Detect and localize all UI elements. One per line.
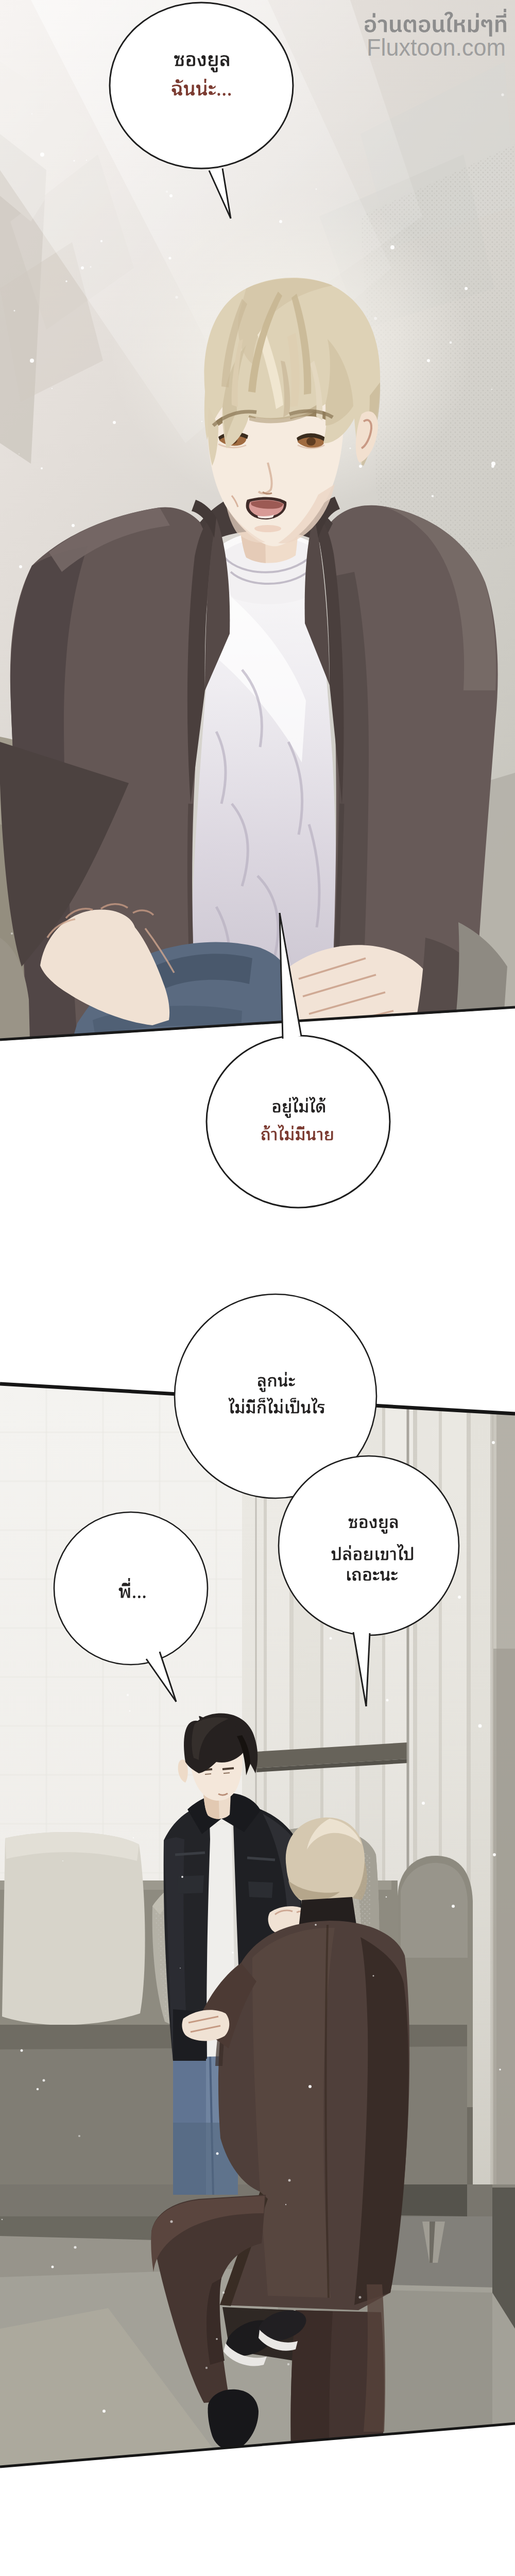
svg-text:Fluxtoon.com: Fluxtoon.com [367,34,506,61]
